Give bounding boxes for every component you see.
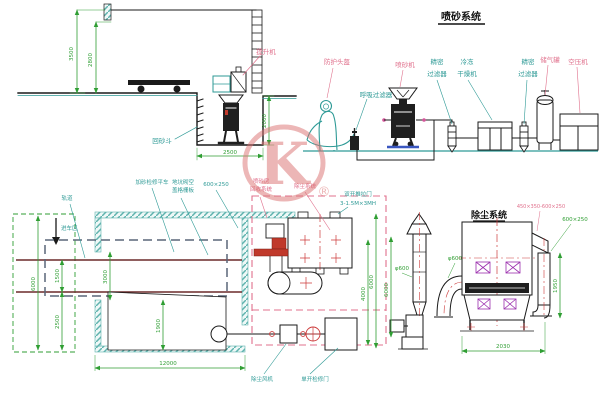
blast-machine-label: 喷砂机 (395, 60, 415, 69)
pit-wall-hatch (197, 99, 203, 142)
door-label-l2: 3-1.5M×3MH (340, 201, 376, 207)
dust-system-view: 除尘系统 (384, 204, 588, 354)
dim-wall-height: 3500 (69, 47, 75, 61)
dim-opening: 3000 (103, 270, 109, 284)
dim-inner-height: 2800 (88, 53, 94, 67)
blast-machine-leader (400, 70, 403, 87)
dim-duct-dia: φ600 (448, 256, 463, 262)
flat-car-label: 加砂检修平车 (135, 178, 169, 186)
flat-car-plan (45, 240, 227, 296)
flow-diagram: 喷砂系统 (303, 10, 598, 160)
duct-size-leader (216, 190, 238, 228)
drawing-svg: 3500 2800 2000 2500 提升机 回砂斗 喷砂系统 (0, 0, 600, 400)
dryer-label-l2: 干燥机 (457, 69, 477, 78)
air-compressor (560, 114, 598, 150)
dryer-leader (468, 80, 492, 120)
dust-system-title: 除尘系统 (471, 209, 507, 221)
service-door-label: 单开检修门 (301, 375, 329, 383)
duct-size-label: 600×250 (203, 182, 229, 188)
wall-column (104, 4, 111, 20)
precision-filter-1 (448, 122, 456, 152)
dim-body-width: 2030 (496, 344, 510, 350)
dim-rail-gauge: 1500 (55, 269, 61, 283)
watermark-k: K (259, 130, 312, 198)
freeze-dryer (478, 122, 512, 150)
cad-drawing-sandblast-system: 3500 2800 2000 2500 提升机 回砂斗 喷砂系统 (0, 0, 600, 400)
fan-and-motor (390, 315, 428, 349)
door-leaf (108, 292, 226, 350)
filter2-leader (524, 80, 527, 124)
compressor-leader (577, 67, 580, 113)
service-door-leader (310, 348, 338, 374)
pit-cover-leader (181, 198, 208, 255)
blast-pot-in-pit (219, 95, 243, 143)
transition-leader (537, 211, 540, 231)
filter1-leader (437, 80, 452, 124)
sand-hopper-leader (175, 127, 197, 139)
inlet-duct (530, 233, 552, 318)
dryer-label-l1: 冷冻 (461, 57, 475, 66)
inlet-duct-leader (551, 224, 571, 251)
filter1-label-l1: 精密 (431, 57, 445, 66)
precision-filter-2 (520, 122, 528, 152)
dim-area-height: 6000 (369, 275, 375, 289)
door-leader (338, 207, 348, 214)
dim-lower-span: 2500 (55, 315, 61, 329)
watermark-registered: ® (318, 185, 331, 200)
compressor-label: 空压机 (568, 57, 588, 66)
dim-door-width: 1900 (156, 319, 162, 333)
pit-cover-label-l1: 地坑砌空 (172, 178, 195, 186)
dim-pit-depth: 2000 (262, 114, 268, 128)
filter1-label-l2: 过滤器 (427, 69, 447, 78)
hoist-label: 提升机 (256, 47, 276, 56)
door-label-l1: 双开推拉门 (344, 190, 372, 198)
dim-stack-dia: φ600 (395, 266, 410, 272)
dim-room-length: 12000 (159, 361, 177, 367)
breath-filter-leader (356, 99, 367, 130)
flat-car-leader (152, 188, 174, 252)
blast-system-title: 喷砂系统 (441, 10, 481, 23)
approach-area-dashed (13, 214, 75, 352)
recovery-machine (254, 212, 352, 294)
helmet-leader (327, 68, 333, 98)
sand-hopper-label: 回砂斗 (152, 136, 172, 145)
fan-inlet-circle (211, 326, 227, 342)
elbow-duct (434, 276, 462, 317)
flat-car (128, 80, 190, 93)
valve-dot-2 (422, 118, 426, 122)
dust-fan-label: 除尘风机 (251, 375, 274, 383)
plan-view: 进车区 (13, 177, 386, 383)
helmet-label: 防护头盔 (324, 57, 351, 66)
dim-stack-height: 6000 (384, 283, 390, 297)
watermark: K ® (245, 127, 331, 200)
dim-area-width: 4000 (361, 287, 367, 301)
entry-label: 进车区 (61, 224, 78, 232)
dim-transition: 450×350-600×250 (517, 204, 565, 210)
breath-filter-label: 呼吸过滤器 (360, 90, 393, 99)
filter2-label-l2: 过滤器 (518, 69, 538, 78)
pit-cover-label-l2: 盖格栅板 (172, 186, 195, 194)
exhaust-stack (407, 212, 431, 318)
filter2-label-l1: 精密 (522, 57, 536, 66)
dust-fan-leader (264, 344, 286, 374)
rail-label: 轨道 (61, 194, 73, 202)
air-tank (537, 90, 553, 150)
entry-arrowhead (52, 237, 60, 245)
air-tank-label: 储气罐 (540, 55, 560, 64)
dust-collector (458, 218, 536, 331)
hoist-machine (213, 67, 246, 92)
pipe-connectors (456, 138, 560, 140)
hoist-leader (243, 56, 260, 75)
dim-inlet-duct: 600×250 (562, 217, 588, 223)
dim-room-height: 6000 (31, 277, 37, 291)
dim-inlet-height: 1950 (553, 279, 559, 293)
breath-filter-device (350, 128, 359, 150)
dim-pit-width: 2500 (223, 150, 237, 156)
